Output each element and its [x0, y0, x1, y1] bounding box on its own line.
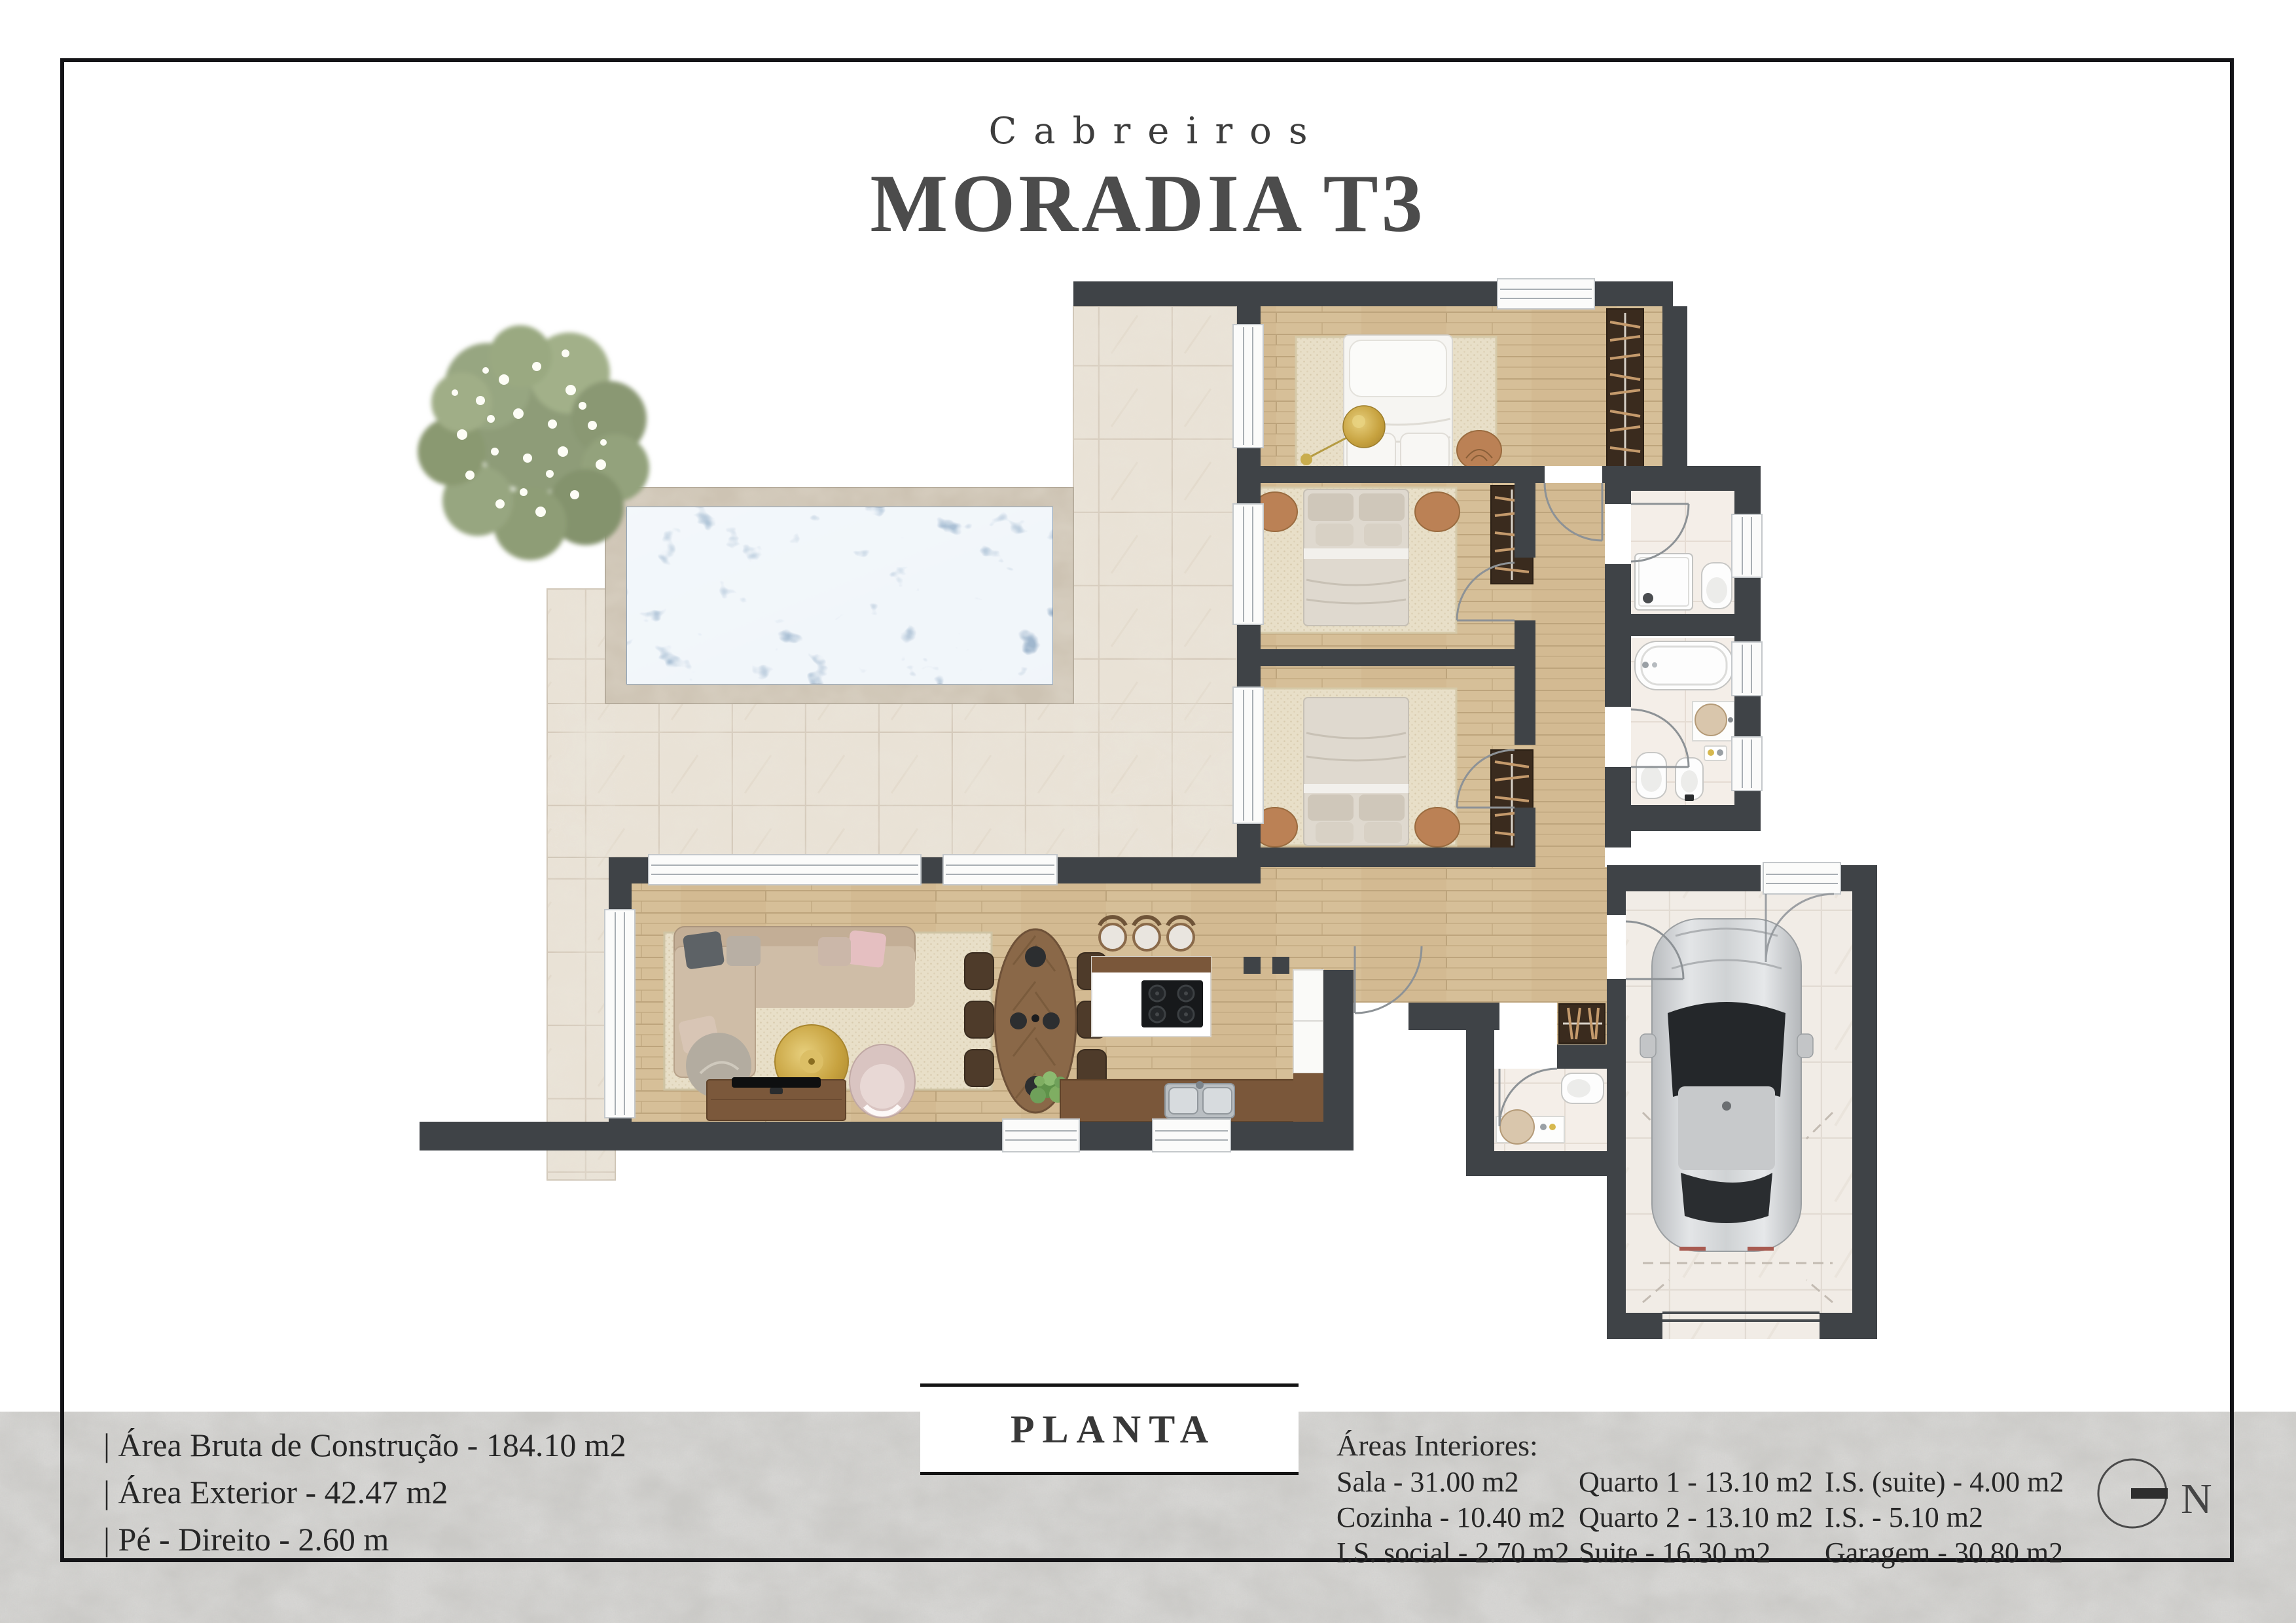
compass-needle	[2131, 1488, 2168, 1499]
area-is: I.S. - 5.10 m2	[1825, 1500, 2064, 1535]
area-cozinha: Cozinha - 10.40 m2	[1336, 1500, 1570, 1535]
car-mirror-icon	[1640, 1034, 1656, 1058]
plan-label-box: PLANTA	[920, 1383, 1299, 1475]
area-is-social: I.S. social - 2.70 m2	[1336, 1535, 1570, 1571]
tv-console-icon	[707, 1077, 846, 1120]
armchair-icon	[850, 1044, 915, 1118]
area-quarto1: Quarto 1 - 13.10 m2	[1579, 1465, 1813, 1500]
interior-areas-col3: I.S. (suite) - 4.00 m2 I.S. - 5.10 m2 Ga…	[1825, 1465, 2064, 1571]
bed-icon	[1304, 698, 1408, 846]
bed-icon	[1304, 490, 1408, 626]
car-mirror-icon	[1797, 1034, 1813, 1058]
area-suite: Suite - 16.30 m2	[1579, 1535, 1813, 1571]
spec-gross-area: | Área Bruta de Construção - 184.10 m2	[103, 1421, 626, 1469]
car-icon	[1640, 919, 1813, 1251]
area-sala: Sala - 31.00 m2	[1336, 1465, 1570, 1500]
page: N Cabreiros MORADIA T3 | Área Bruta de C…	[0, 0, 2296, 1623]
bathtub-icon	[1635, 641, 1733, 690]
toilet-icon	[1636, 753, 1666, 798]
pool	[605, 488, 1073, 704]
spec-ceiling-height: | Pé - Direito - 2.60 m	[103, 1516, 626, 1563]
tree	[418, 325, 649, 560]
toilet-icon	[1562, 1073, 1604, 1103]
entry-wardrobe-icon	[1559, 1004, 1605, 1043]
area-quarto2: Quarto 2 - 13.10 m2	[1579, 1500, 1813, 1535]
interior-areas-col1: Sala - 31.00 m2 Cozinha - 10.40 m2 I.S. …	[1336, 1465, 1570, 1571]
interior-areas-col2: Quarto 1 - 13.10 m2 Quarto 2 - 13.10 m2 …	[1579, 1465, 1813, 1571]
shower-icon	[1635, 554, 1693, 610]
spec-list: | Área Bruta de Construção - 184.10 m2 |…	[103, 1421, 626, 1563]
hob-icon	[1141, 980, 1203, 1027]
sink-icon	[1165, 1081, 1234, 1118]
compass-label: N	[2181, 1475, 2212, 1523]
tv-icon	[732, 1077, 821, 1088]
area-is-suite: I.S. (suite) - 4.00 m2	[1825, 1465, 2064, 1500]
wood-pouf-icon	[1415, 492, 1460, 531]
toilet-icon	[1702, 563, 1732, 609]
wardrobe-icon	[1607, 309, 1643, 474]
interior-areas-title: Áreas Interiores:	[1336, 1428, 1538, 1463]
spec-exterior-area: | Área Exterior - 42.47 m2	[103, 1469, 626, 1516]
location-title: Cabreiros	[0, 110, 2296, 152]
area-garagem: Garagem - 30.80 m2	[1825, 1535, 2064, 1571]
kitchen-island-icon	[1092, 957, 1211, 1037]
page-title: MORADIA T3	[0, 157, 2296, 251]
plan-label: PLANTA	[1011, 1407, 1216, 1452]
wood-pouf-icon	[1415, 808, 1460, 847]
